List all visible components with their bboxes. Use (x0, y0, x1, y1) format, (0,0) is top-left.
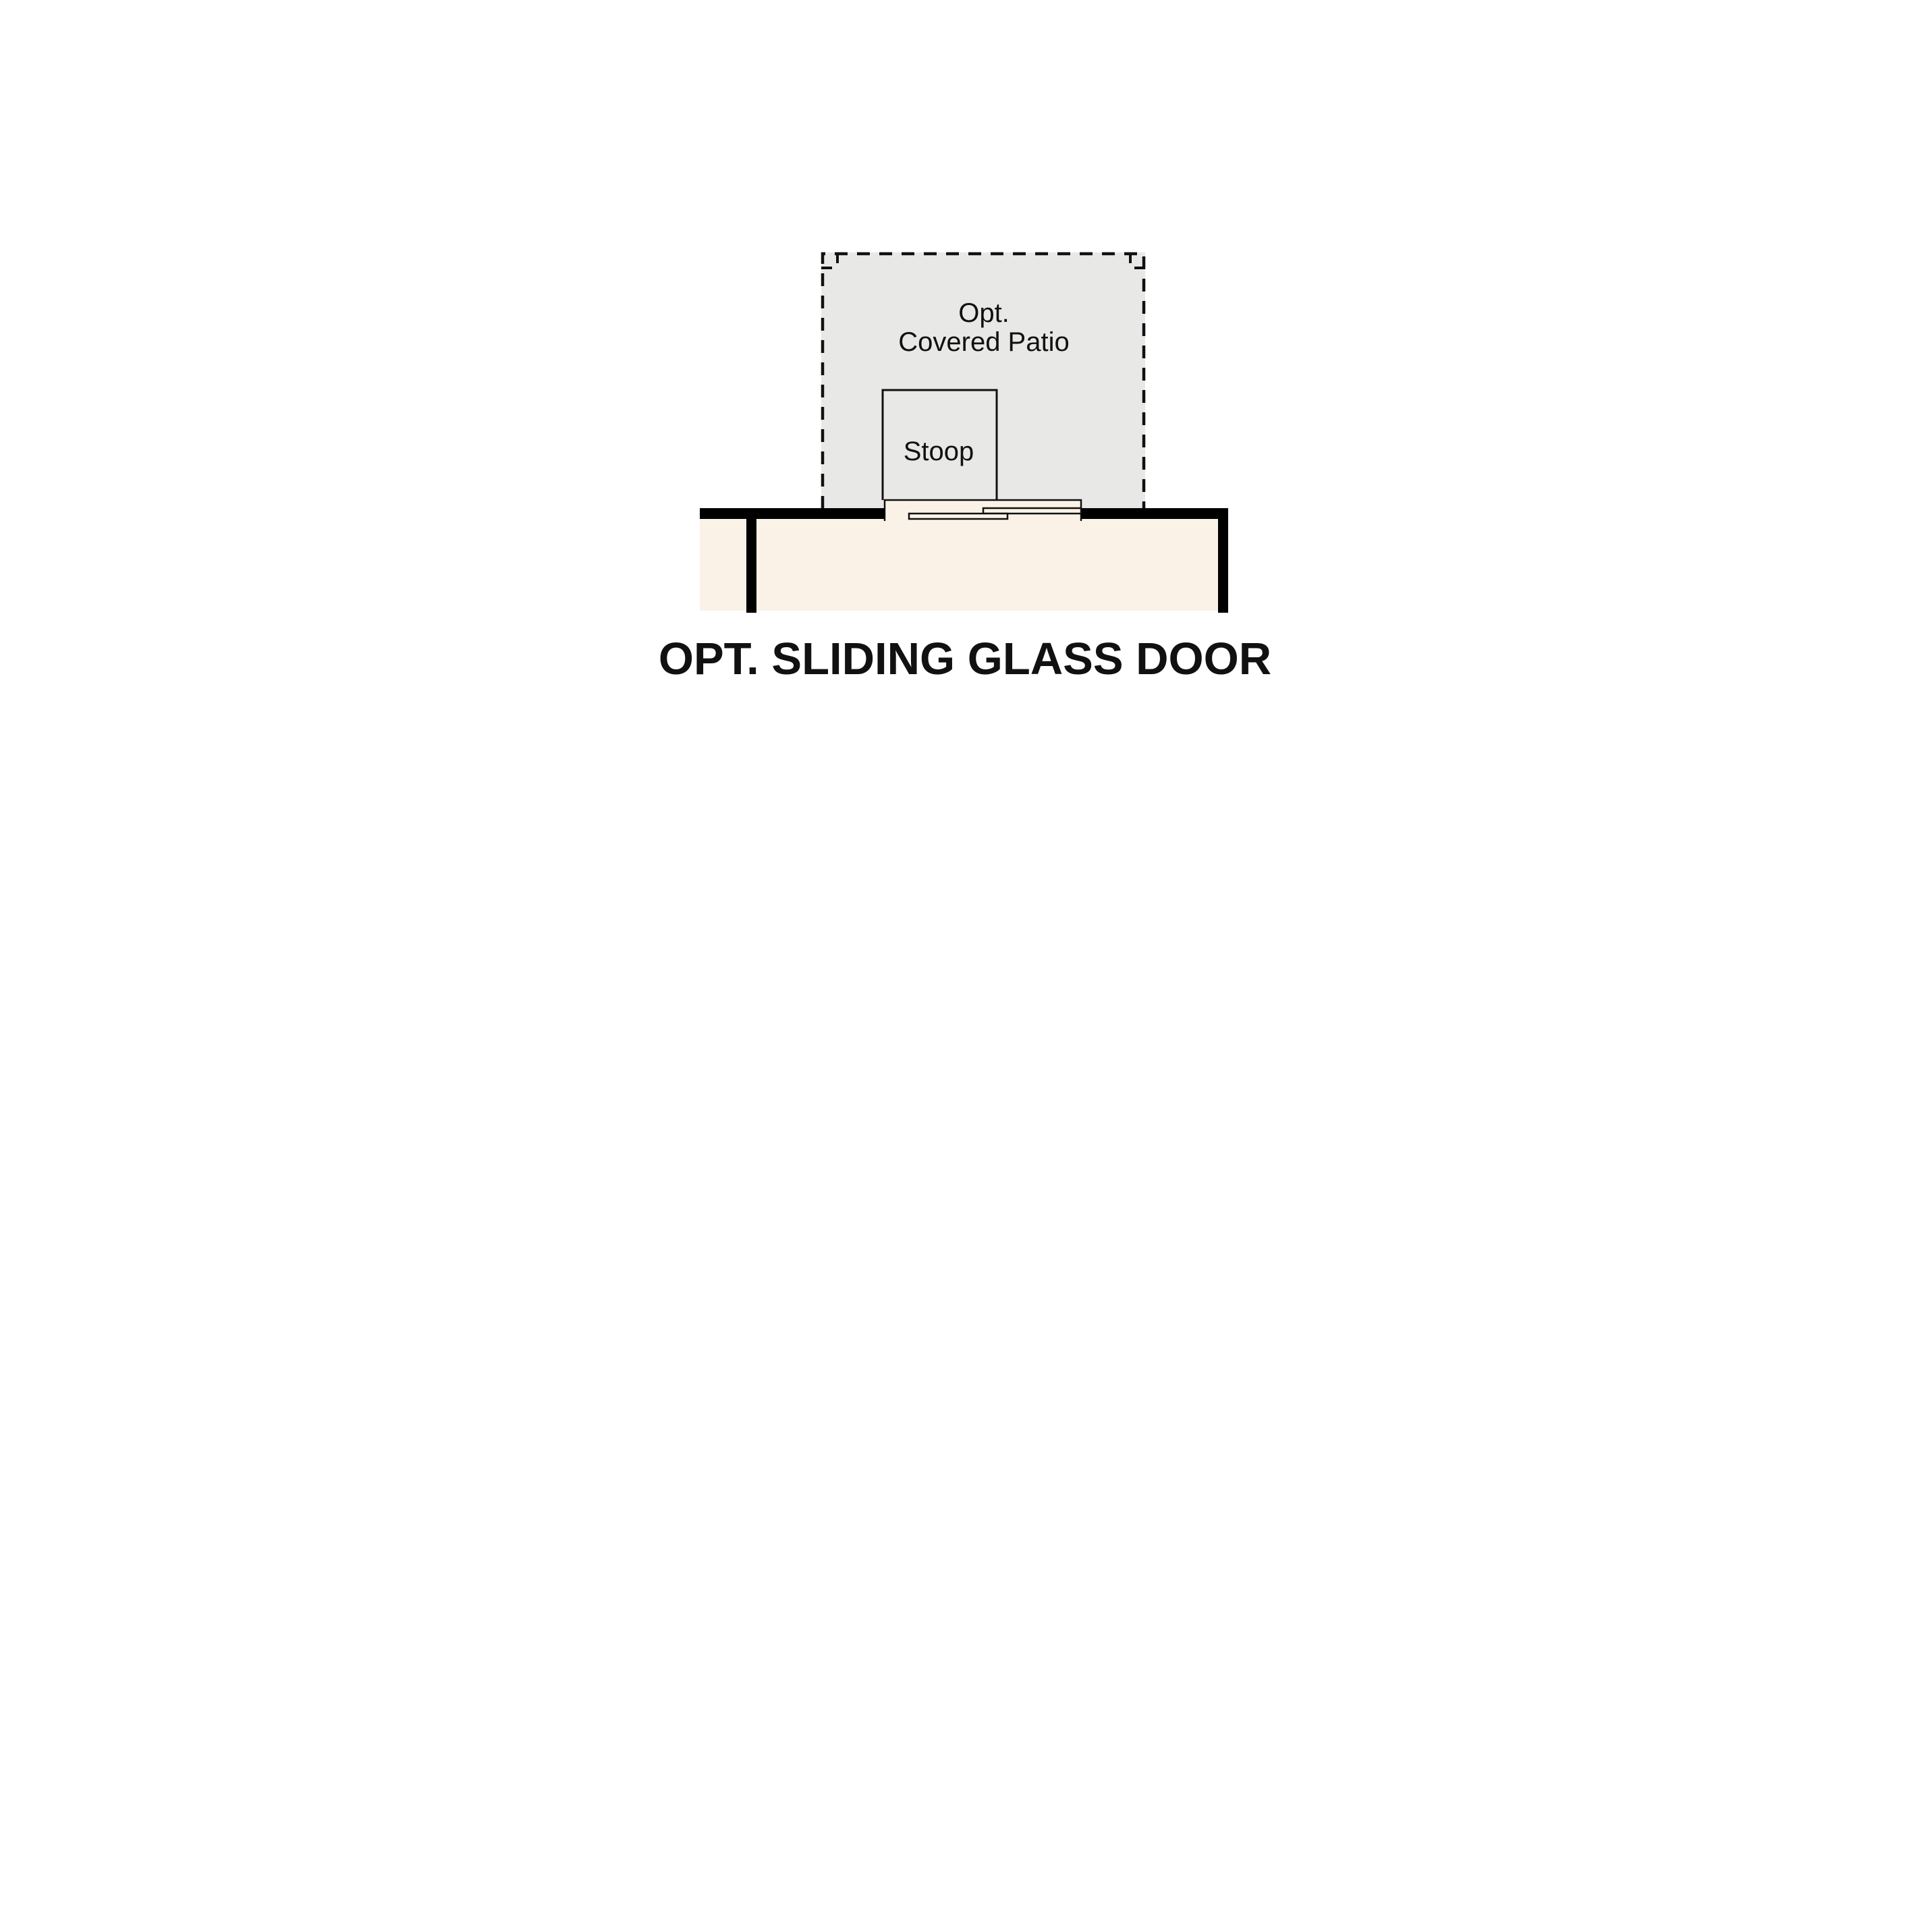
patio-label-line1: Opt. (958, 298, 1010, 328)
sliding-door-panel-left (909, 514, 1008, 519)
interior-wall-left-vertical (746, 518, 756, 613)
interior-floor (700, 518, 1218, 611)
patio-label-line2: Covered Patio (898, 327, 1069, 357)
caption-title: OPT. SLIDING GLASS DOOR (659, 634, 1271, 684)
stoop-label: Stoop (904, 437, 974, 466)
wall-right-segment (1081, 508, 1228, 519)
floor-plan-canvas: Opt. Covered Patio Stoop OPT. SLIDING GL… (0, 0, 1932, 1932)
wall-right-vertical (1218, 508, 1228, 613)
floor-plan-page: Opt. Covered Patio Stoop OPT. SLIDING GL… (0, 0, 1932, 1932)
wall-left-segment (700, 508, 885, 519)
